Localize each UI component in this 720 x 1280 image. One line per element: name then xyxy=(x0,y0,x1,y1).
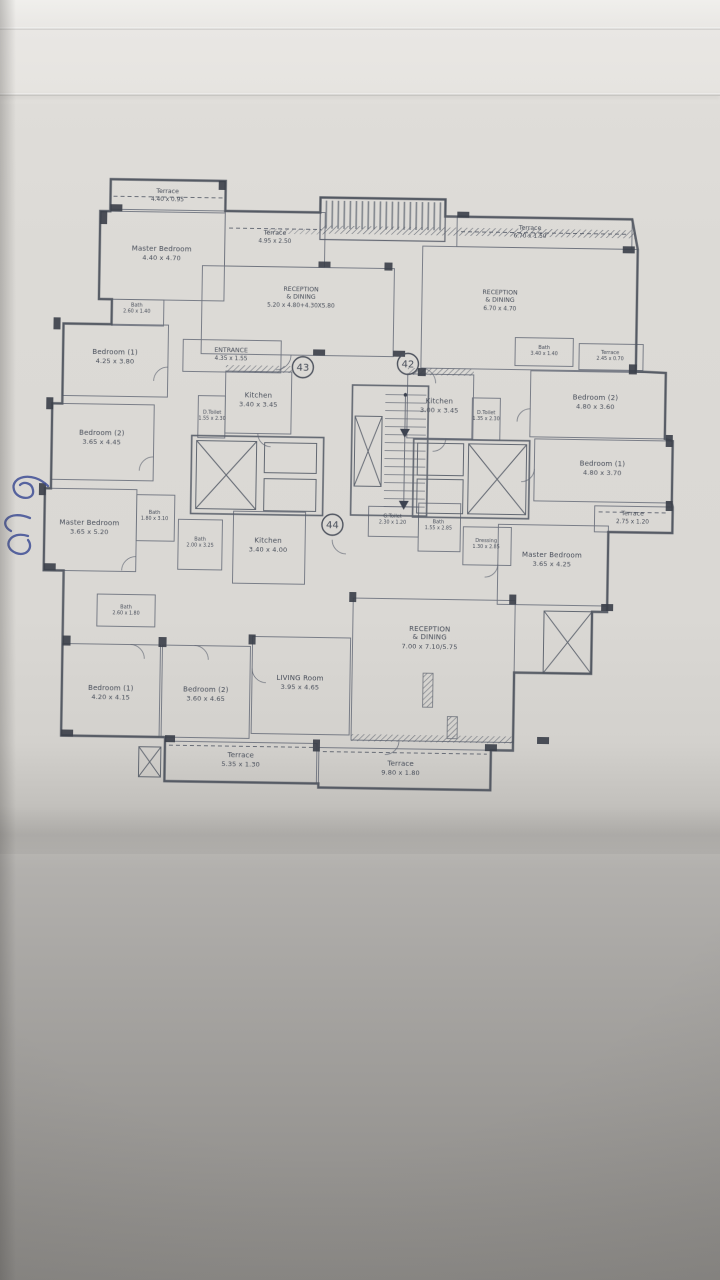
room-label: Bath2.60 x 1.80 xyxy=(112,604,139,616)
room-label: RECEPTION& DINING5.20 x 4.80+4.30X5.80 xyxy=(267,286,335,310)
room-label: Bedroom (1)4.80 x 3.70 xyxy=(579,460,625,478)
paper-crease xyxy=(0,93,720,96)
room-label: Terrace4.40 x 0.95 xyxy=(151,188,184,204)
photo-of-floor-plan-sheet: 43 42 44 Terrace4.40 x 0.95 Master Bedro… xyxy=(0,0,720,1280)
floor-plan-area: 43 42 44 Terrace4.40 x 0.95 Master Bedro… xyxy=(16,165,694,827)
svg-text:44: 44 xyxy=(326,520,339,531)
room-label: Dressing1.30 x 2.85 xyxy=(472,538,499,550)
room-label: Kitchen3.40 x 3.45 xyxy=(239,391,278,409)
unit-number-badge: 44 xyxy=(322,514,343,535)
room-label: Kitchen3.00 x 3.45 xyxy=(420,397,459,415)
room-label: Kitchen3.40 x 4.00 xyxy=(249,536,288,554)
room-label: Bath1.55 x 2.85 xyxy=(425,519,452,531)
room-label: RECEPTION& DINING6.70 x 4.70 xyxy=(482,289,518,313)
room-label: Bedroom (1)4.25 x 3.80 xyxy=(92,348,138,366)
unit-number-badge: 43 xyxy=(292,357,313,378)
room-label: LIVING Room3.95 x 4.65 xyxy=(276,674,324,692)
room-label: Bath1.80 x 3.10 xyxy=(141,510,168,522)
room-label: Master Bedroom3.65 x 4.25 xyxy=(522,551,582,569)
room-label: Terrace5.35 x 1.30 xyxy=(221,751,260,769)
room-label: Bedroom (2)3.60 x 4.65 xyxy=(183,685,229,703)
room-label: RECEPTION& DINING7.00 x 7.10/5.75 xyxy=(401,625,457,651)
svg-text:42: 42 xyxy=(401,359,414,370)
paper-crease xyxy=(0,27,720,30)
room-label: D.Toilet1.55 x 2.30 xyxy=(198,410,225,422)
room-label: Bath2.60 x 1.40 xyxy=(123,302,150,314)
room-label: Terrace2.45 x 0.70 xyxy=(596,350,623,362)
floor-plan-drawing: 43 42 44 Terrace4.40 x 0.95 Master Bedro… xyxy=(16,165,694,827)
room-label: Bath3.40 x 1.40 xyxy=(530,345,557,357)
room-label: Terrace9.80 x 1.80 xyxy=(381,760,420,778)
room-label: Bedroom (1)4.20 x 4.15 xyxy=(88,684,134,702)
room-label: Bedroom (2)3.65 x 4.45 xyxy=(79,429,125,447)
photo-edge-shadow xyxy=(0,0,16,1280)
room-label: Bedroom (2)4.80 x 3.60 xyxy=(573,393,619,411)
room-label: Bath2.00 x 3.25 xyxy=(186,536,213,548)
building-core xyxy=(138,382,595,784)
svg-text:43: 43 xyxy=(296,363,309,374)
room-label: Master Bedroom4.40 x 4.70 xyxy=(132,245,192,263)
room-label: D.Toilet1.35 x 2.30 xyxy=(472,410,499,422)
handwritten-ink-mark xyxy=(0,468,76,578)
